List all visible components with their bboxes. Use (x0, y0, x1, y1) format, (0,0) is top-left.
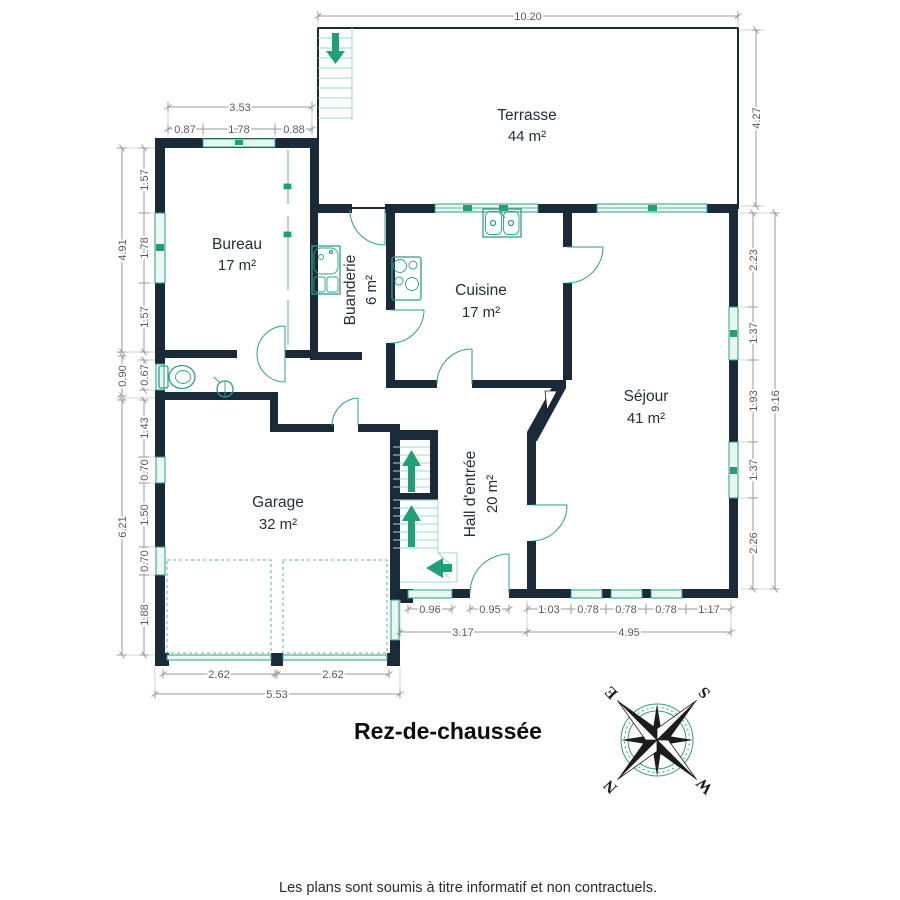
dim-label: 1.37 (748, 459, 760, 480)
window (391, 600, 399, 640)
window (156, 457, 165, 483)
dim-label: 2.62 (208, 669, 229, 681)
compass-letter-e: E (602, 682, 622, 702)
dim-label: 4.91 (117, 239, 129, 260)
compass-letter-s: S (696, 683, 714, 701)
dim-label: 1.78 (228, 124, 249, 136)
kitchen-sink-icon (483, 209, 521, 237)
room-label-sejour: Séjour (624, 388, 669, 405)
room-label-cuisine: Cuisine (455, 282, 507, 299)
fireplace-wall (527, 380, 566, 441)
door-arc-terrasse-buanderie (350, 210, 385, 245)
room-area-hall: 20 m² (484, 475, 501, 513)
dim-label: 1.17 (698, 604, 719, 616)
door-arc-cuisine-sejour (567, 247, 603, 283)
dim-label: 0.90 (117, 365, 129, 386)
floor-plan-canvas: Terrasse 44 m² (0, 0, 900, 900)
door-arc-entry (470, 554, 509, 593)
dim-label: 0.78 (615, 604, 636, 616)
door-arc-sejour-hall (531, 505, 567, 541)
disclaimer-text: Les plans sont soumis à titre informatif… (279, 880, 657, 896)
dim-label: 1.88 (139, 604, 151, 625)
dim-label: 1.57 (139, 169, 151, 190)
door-arc-bureau (257, 326, 285, 354)
dim-label: 4.27 (751, 107, 763, 128)
dim-label: 0.87 (174, 124, 195, 136)
room-area-sejour: 41 m² (627, 410, 665, 427)
dim-label: 5.53 (266, 689, 287, 701)
dim-label: 3.17 (452, 627, 473, 639)
dim-label: 3.53 (229, 102, 250, 114)
compass-letter-w: W (693, 774, 716, 797)
room-label-garage: Garage (252, 494, 304, 511)
dim-label: 0.70 (139, 459, 151, 480)
bureau-partition (284, 150, 291, 345)
door-arc-garage-hall (332, 398, 358, 426)
room-area-cuisine: 17 m² (462, 304, 500, 321)
dim-label: 0.78 (655, 604, 676, 616)
room-area-garage: 32 m² (259, 516, 297, 533)
page-title: Rez-de-chaussée (354, 718, 542, 744)
dim-label: 1.37 (748, 322, 760, 343)
dim-label: 4.95 (618, 627, 639, 639)
dim-label: 1.50 (139, 504, 151, 525)
dim-label: 1.93 (748, 390, 760, 411)
dim-label: 0.78 (577, 604, 598, 616)
dim-label: 6.21 (117, 516, 129, 537)
window (156, 364, 164, 390)
room-label-terrasse: Terrasse (497, 107, 556, 124)
arrow-up-icon (402, 505, 421, 547)
dim-label: 9.16 (770, 390, 782, 411)
garage-door-swing (283, 560, 387, 653)
dim-label: 0.67 (139, 364, 151, 385)
room-area-buanderie: 6 m² (363, 275, 380, 305)
dim-label: 1.57 (139, 306, 151, 327)
terrasse-room: Terrasse 44 m² (318, 28, 738, 208)
dim-label: 2.62 (322, 669, 343, 681)
dim-label: 0.95 (479, 604, 500, 616)
room-area-bureau: 17 m² (218, 257, 256, 274)
window (611, 590, 642, 598)
room-label-hall: Hall d'entrée (462, 451, 479, 538)
door-arc-cuisine-hall (437, 349, 472, 384)
room-labels: Bureau 17 m² Buanderie 6 m² Cuisine 17 m… (212, 236, 668, 537)
dim-label: 0.88 (283, 124, 304, 136)
dim-label: 0.96 (419, 604, 440, 616)
room-area-terrasse: 44 m² (508, 128, 546, 145)
room-label-buanderie: Buanderie (342, 255, 359, 326)
garage-door (167, 655, 271, 660)
window (651, 590, 682, 598)
garage-door-swing (167, 560, 271, 653)
dim-label: 1.43 (139, 417, 151, 438)
stove-icon (392, 257, 421, 300)
garage-doors (167, 560, 387, 660)
window (571, 590, 602, 598)
dim-label: 1.78 (139, 237, 151, 258)
window (408, 590, 452, 598)
dim-label: 10.20 (514, 11, 542, 23)
dim-label: 2.26 (748, 532, 760, 553)
door-arc-buanderie-cuisine (391, 310, 424, 343)
dim-label: 0.70 (139, 550, 151, 571)
compass-rose: N E S W (554, 636, 763, 845)
door-arc-wc-corridor (257, 354, 285, 382)
floor-plan-page: Terrasse 44 m² (0, 0, 900, 900)
window (156, 547, 165, 575)
dim-label: 1.03 (538, 604, 559, 616)
dim-label: 2.23 (748, 249, 760, 270)
room-label-bureau: Bureau (212, 236, 262, 253)
arrow-left-icon (426, 558, 452, 578)
hall-stairs-icon (393, 447, 457, 582)
garage-door (283, 655, 387, 660)
